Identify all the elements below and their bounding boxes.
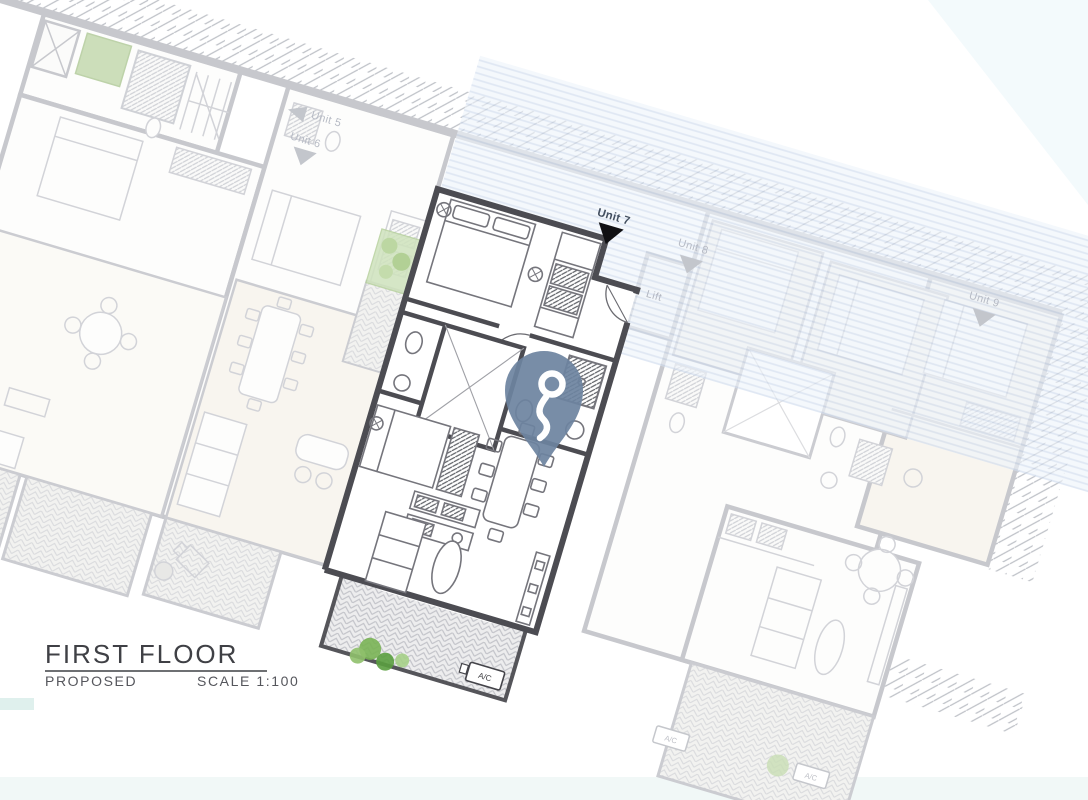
- drawing-title: FIRST FLOOR: [45, 639, 238, 669]
- drawing-scale: SCALE 1:100: [197, 673, 299, 689]
- left-tint-chip: [0, 698, 34, 710]
- floor-plan-drawing: A/C A/C: [0, 0, 1088, 800]
- drawing-status: PROPOSED: [45, 673, 137, 689]
- floor-plan-page: A/C A/C: [0, 0, 1088, 800]
- bottom-tint-band: [0, 777, 1088, 800]
